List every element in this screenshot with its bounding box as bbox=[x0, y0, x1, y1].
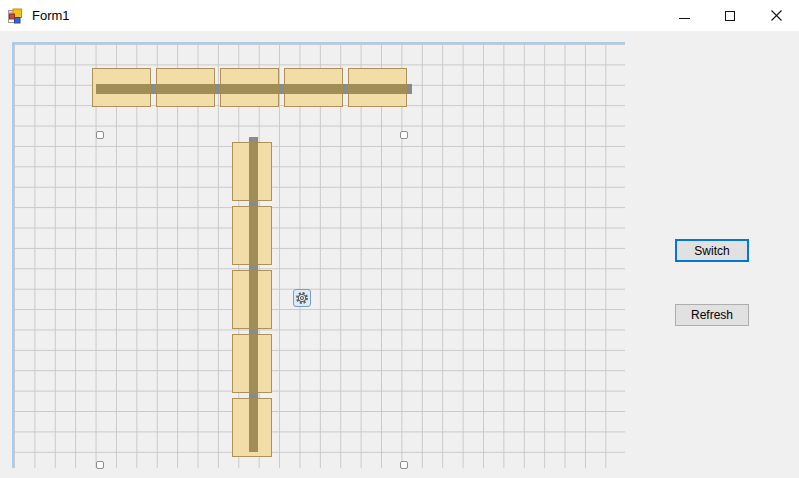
close-icon bbox=[771, 10, 782, 21]
window-title: Form1 bbox=[32, 8, 70, 23]
belt-segment-brown bbox=[96, 84, 151, 94]
refresh-button[interactable]: Refresh bbox=[675, 304, 749, 326]
window-controls bbox=[661, 0, 799, 31]
maximize-icon bbox=[725, 11, 735, 21]
belt-segment-brown bbox=[249, 142, 258, 201]
minimize-button[interactable] bbox=[661, 0, 707, 31]
gear-icon bbox=[295, 291, 309, 305]
sensor-checkbox[interactable] bbox=[400, 461, 408, 469]
belt-segment-brown bbox=[284, 84, 343, 94]
close-button[interactable] bbox=[753, 0, 799, 31]
maximize-button[interactable] bbox=[707, 0, 753, 31]
belt-segment-brown bbox=[249, 398, 258, 452]
belt-segment-brown bbox=[348, 84, 407, 94]
winforms-app-icon bbox=[8, 8, 25, 24]
minimize-icon bbox=[679, 18, 690, 19]
gear-button[interactable] bbox=[293, 289, 311, 307]
belt-segment-brown bbox=[249, 206, 258, 265]
titlebar: Form1 bbox=[0, 0, 799, 31]
sensor-checkbox[interactable] bbox=[96, 131, 104, 139]
sensor-checkbox[interactable] bbox=[400, 131, 408, 139]
switch-button[interactable]: Switch bbox=[675, 239, 749, 262]
belt-segment-brown bbox=[220, 84, 279, 94]
form-window: Form1 Switch Refresh bbox=[0, 0, 799, 478]
belt-segment-brown bbox=[249, 334, 258, 393]
sensor-checkbox[interactable] bbox=[96, 461, 104, 469]
belt-segment-brown bbox=[156, 84, 215, 94]
belt-segment-brown bbox=[249, 270, 258, 329]
